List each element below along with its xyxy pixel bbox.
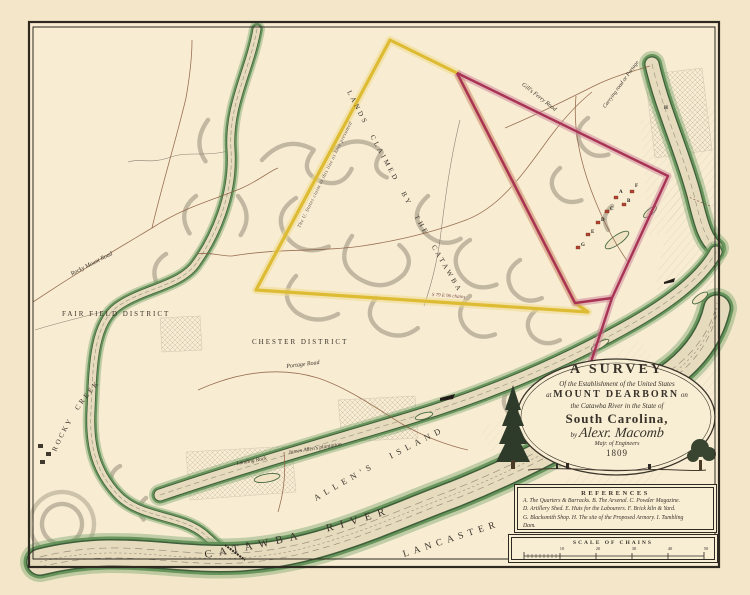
site-letter-b: B [627, 199, 630, 204]
site-letter-a: A [619, 190, 623, 195]
title-cartouche: A SURVEY Of the Establishment of the Uni… [519, 363, 715, 458]
title-line-4: the Catawba River in the State of [519, 403, 715, 410]
site-letter-f: F [635, 184, 638, 189]
references-line-2: D. Artillery Shed. E. Huts for the Labou… [523, 505, 708, 513]
site-letter-d: D [601, 218, 605, 223]
references-line-3: G. Blacksmith Shop. H. The site of the P… [523, 514, 708, 522]
scale-tick-30: 30 [632, 546, 637, 551]
title-mount-dearborn: MOUNT DEARBORN [553, 389, 679, 400]
map-sheet: CATAWBA RIVER ALLEN'S ISLAND LANCASTER C… [0, 0, 750, 595]
references-inner: REFERENCES A. The Quarters & Barracks. B… [517, 487, 714, 530]
site-letter-i: I [246, 543, 248, 548]
surveyor-signature: Alexr. Macomb [578, 427, 664, 442]
references-line-4: Dam. [523, 522, 708, 530]
site-letter-h: H [664, 106, 668, 111]
scale-bar-rule [512, 551, 716, 561]
map-title: A SURVEY [519, 363, 715, 378]
scale-bar-inner: SCALE OF CHAINS 10 20 30 40 50 [511, 537, 715, 560]
scale-bar-box: SCALE OF CHAINS 10 20 30 40 50 [508, 534, 718, 563]
fair-field-district-label: FAIR FIELD DISTRICT [62, 310, 170, 318]
references-box: REFERENCES A. The Quarters & Barracks. B… [514, 484, 717, 533]
chester-district-label: CHESTER DISTRICT [252, 338, 348, 346]
scale-tick-40: 40 [668, 546, 673, 551]
surveyor-rank: Majr. of Engineers [519, 441, 715, 447]
references-line-1: A. The Quarters & Barracks. B. The Arsen… [523, 497, 708, 505]
scale-tick-20: 20 [596, 546, 601, 551]
title-south-carolina: South Carolina, [519, 412, 715, 426]
references-heading: REFERENCES [523, 490, 708, 497]
title-on: on [681, 391, 688, 399]
title-byline: by Alexr. Macomb [519, 427, 715, 442]
scale-tick-50: 50 [704, 546, 709, 551]
title-line-2: Of the Establishment of the United State… [519, 381, 715, 388]
title-at: at [546, 391, 551, 399]
site-letter-c: C [610, 207, 614, 212]
scale-bar-label: SCALE OF CHAINS [512, 540, 714, 546]
map-year: 1809 [519, 449, 715, 458]
scale-tick-10: 10 [560, 546, 565, 551]
site-letter-e: E [591, 230, 594, 235]
title-line-3: at MOUNT DEARBORN on [519, 390, 715, 401]
title-by: by [570, 431, 577, 439]
site-letter-g: G [581, 243, 585, 248]
